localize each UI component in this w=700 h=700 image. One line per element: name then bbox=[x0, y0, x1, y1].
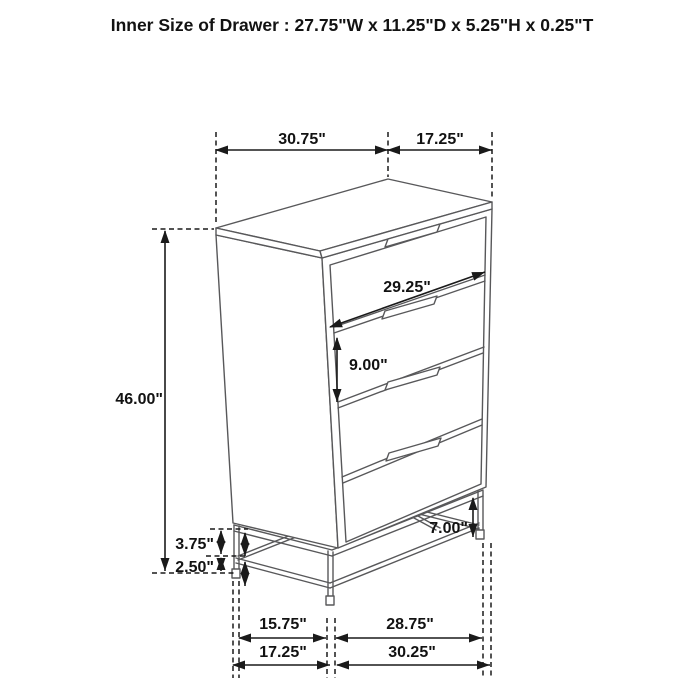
dim-top-left-label: 30.75" bbox=[278, 131, 326, 148]
dim-base-upper-label: 3.75" bbox=[175, 536, 214, 553]
side-panel bbox=[216, 235, 338, 548]
dim-base-lower-label: 2.50" bbox=[175, 559, 214, 576]
base-leg-front bbox=[326, 551, 334, 605]
dim-drawer-spacing-label: 9.00" bbox=[349, 357, 388, 374]
dim-top-right-label: 17.25" bbox=[416, 131, 464, 148]
diagram-title: Inner Size of Drawer : 27.75"W x 11.25"D… bbox=[111, 15, 594, 35]
chest-drawing bbox=[216, 179, 492, 605]
base-leg-left bbox=[232, 525, 240, 578]
diagram-canvas: Inner Size of Drawer : 27.75"W x 11.25"D… bbox=[0, 0, 700, 700]
dim-bottom-spans: 15.75" 28.75" 17.25" 30.25" bbox=[233, 543, 491, 678]
dim-base-clearance-label: 7.00" bbox=[429, 520, 468, 537]
dim-bottom-inner-right-label: 28.75" bbox=[386, 616, 434, 633]
foot-front bbox=[326, 596, 334, 605]
dim-height-label: 46.00" bbox=[115, 391, 163, 408]
dim-drawer-width-label: 29.25" bbox=[383, 279, 431, 296]
dim-overall-height: 46.00" bbox=[115, 229, 234, 573]
furniture-dimension-diagram: Inner Size of Drawer : 27.75"W x 11.25"D… bbox=[0, 0, 700, 700]
dim-base-upper: 3.75" bbox=[175, 529, 248, 556]
dim-bottom-outer-right-label: 30.25" bbox=[388, 644, 436, 661]
foot-right bbox=[476, 530, 484, 539]
dim-bottom-inner-left-label: 15.75" bbox=[259, 616, 307, 633]
dim-bottom-outer-left-label: 17.25" bbox=[259, 644, 307, 661]
